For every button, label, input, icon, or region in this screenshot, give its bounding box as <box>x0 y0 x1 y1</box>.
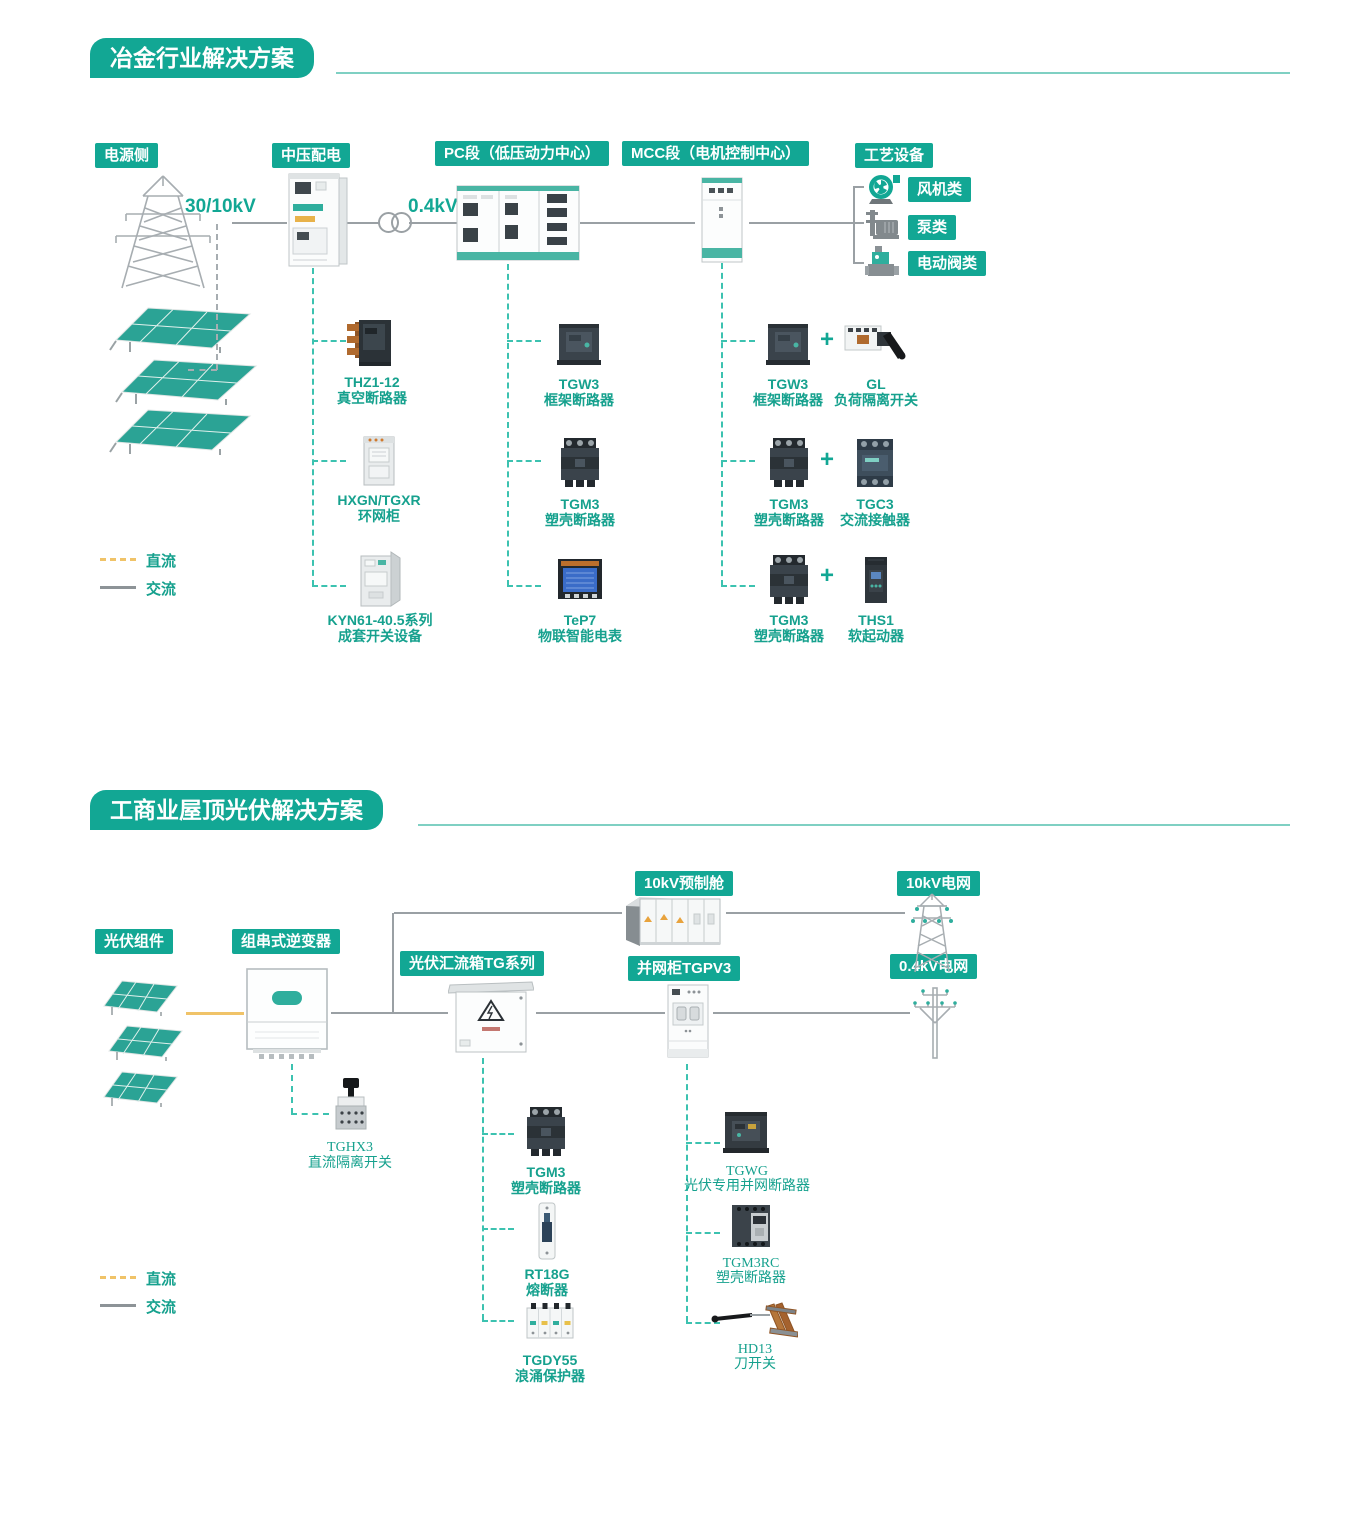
product-model: TGW3 <box>559 376 599 392</box>
ac-line <box>409 222 457 224</box>
product-desc: 物联智能电表 <box>538 628 622 644</box>
product-model: TGWG <box>726 1164 768 1180</box>
solar-panel-icon <box>100 300 260 354</box>
product-desc: 塑壳断路器 <box>754 628 824 644</box>
pc-branch-line <box>507 340 541 342</box>
product-model: TGM3RC <box>723 1256 780 1272</box>
product-tgwg-image <box>721 1106 771 1158</box>
product-model: TGM3 <box>770 496 809 512</box>
product-desc: 框架断路器 <box>753 392 823 408</box>
grid-branch-line <box>686 1232 720 1234</box>
mv-branch-line <box>312 460 346 462</box>
legend-ac-swatch <box>100 586 136 589</box>
legend-ac-label: 交流 <box>146 578 176 599</box>
product-desc: 环网柜 <box>358 508 400 524</box>
process-bracket-line <box>853 186 864 188</box>
product-model: TGDY55 <box>523 1352 577 1368</box>
plus-sign: + <box>820 448 834 472</box>
combiner-branch-line <box>482 1320 514 1322</box>
chip-pump-type: 泵类 <box>908 215 956 240</box>
product-model: TGHX3 <box>327 1140 373 1156</box>
page: 冶金行业解决方案 电源侧 中压配电 PC段（低压动力中心） MCC段（电机控制中… <box>0 0 1350 1528</box>
pc-branch-line <box>507 585 541 587</box>
pv-feed-dashed-line <box>216 224 218 370</box>
product-model: HXGN/TGXR <box>337 492 420 508</box>
product-model: RT18G <box>524 1266 569 1282</box>
plus-sign: + <box>820 328 834 352</box>
inverter-branch-line <box>291 1113 329 1115</box>
product-tgm3-image <box>764 552 814 607</box>
voltage-04kv: 0.4kV <box>408 196 458 218</box>
product-desc: 浪涌保护器 <box>515 1368 585 1384</box>
ac-line <box>713 1012 910 1014</box>
legend-ac-swatch <box>100 1304 136 1307</box>
product-model: THZ1-12 <box>344 374 399 390</box>
product-tgm3rc-image <box>728 1200 774 1252</box>
grid-tower-icon <box>905 890 959 978</box>
ac-line <box>392 913 394 1013</box>
product-model: TGC3 <box>856 496 893 512</box>
product-model: TeP7 <box>564 612 596 628</box>
pump-icon <box>864 206 902 242</box>
transformer-icon <box>375 208 415 237</box>
product-gl-image <box>843 320 907 366</box>
ac-line <box>232 222 287 224</box>
product-model: HD13 <box>738 1342 772 1358</box>
ac-line <box>536 1012 665 1014</box>
pc-cabinet-image <box>455 180 581 266</box>
product-desc: 刀开关 <box>734 1357 776 1373</box>
solar-panel-icon <box>100 402 260 456</box>
dc-line <box>186 1012 244 1015</box>
mcc-branch-line <box>721 460 755 462</box>
product-tgdy55-image <box>525 1300 575 1344</box>
combiner-box-image <box>448 976 534 1056</box>
product-tgm3-image <box>555 435 605 490</box>
product-hd13-image <box>710 1300 798 1340</box>
product-kyn61-image <box>357 550 403 608</box>
product-model: GL <box>866 376 885 392</box>
product-tgc3-image <box>851 435 899 491</box>
legend-dc-swatch <box>100 1276 136 1279</box>
product-desc: 塑壳断路器 <box>545 512 615 528</box>
ac-line <box>580 222 695 224</box>
product-model: KYN61-40.5系列 <box>327 612 432 628</box>
product-model: THS1 <box>858 612 894 628</box>
pc-branch-line <box>507 264 509 586</box>
chip-string-inverter: 组串式逆变器 <box>232 929 340 954</box>
product-desc: 成套开关设备 <box>338 628 422 644</box>
product-tgm3-image <box>764 435 814 490</box>
mv-branch-line <box>312 585 346 587</box>
ac-line <box>726 912 905 914</box>
chip-pv-module: 光伏组件 <box>95 929 173 954</box>
string-inverter-image <box>245 966 329 1062</box>
utility-pole-icon <box>910 982 960 1062</box>
mcc-cabinet-image <box>694 174 750 266</box>
process-bracket-line <box>853 186 855 264</box>
product-desc: 负荷隔离开关 <box>834 392 918 408</box>
mcc-branch-line <box>721 340 755 342</box>
product-hxgn-image <box>362 434 396 488</box>
product-tep7-image <box>555 556 605 602</box>
grid-cabinet-image <box>665 983 711 1061</box>
product-desc: 交流接触器 <box>840 512 910 528</box>
product-desc: 熔断器 <box>526 1282 568 1298</box>
product-desc: 真空断路器 <box>337 390 407 406</box>
combiner-branch-line <box>482 1228 514 1230</box>
chip-pc-section: PC段（低压动力中心） <box>435 141 609 166</box>
solar-panel-icon <box>95 975 183 1017</box>
legend-dc-label: 直流 <box>146 1268 176 1289</box>
combiner-branch-line <box>482 1058 484 1320</box>
section1-title: 冶金行业解决方案 <box>90 38 314 78</box>
combiner-branch-line <box>482 1133 514 1135</box>
product-model: TGM3 <box>561 496 600 512</box>
mv-branch-line <box>312 268 314 586</box>
plus-sign: + <box>820 564 834 588</box>
chip-power-side: 电源侧 <box>95 143 158 168</box>
mcc-branch-line <box>721 263 723 586</box>
section2-underline <box>418 824 1290 826</box>
product-desc: 塑壳断路器 <box>754 512 824 528</box>
legend-ac-label: 交流 <box>146 1296 176 1317</box>
valve-icon <box>864 244 902 282</box>
chip-fan-type: 风机类 <box>908 177 971 202</box>
chip-process-equipment: 工艺设备 <box>855 143 933 168</box>
product-desc: 软起动器 <box>848 628 904 644</box>
product-desc: 直流隔离开关 <box>308 1156 392 1172</box>
chip-mv-distribution: 中压配电 <box>272 143 350 168</box>
product-model: TGW3 <box>768 376 808 392</box>
product-model: TGM3 <box>527 1164 566 1180</box>
chip-combiner-box: 光伏汇流箱TG系列 <box>400 951 544 976</box>
inverter-branch-line <box>291 1064 293 1114</box>
chip-grid-cabinet: 并网柜TGPV3 <box>628 956 740 981</box>
product-rt18g-image <box>535 1200 559 1262</box>
process-bracket-line <box>853 222 864 224</box>
solar-panel-icon <box>95 1066 183 1108</box>
solar-panel-icon <box>106 352 266 406</box>
legend-dc-swatch <box>100 558 136 561</box>
mcc-branch-line <box>721 585 755 587</box>
solar-panel-icon <box>100 1020 188 1062</box>
ac-line <box>749 222 853 224</box>
product-tgw3-image <box>553 316 605 368</box>
ac-line <box>394 912 622 914</box>
pv-feed-dashed-line <box>188 369 217 371</box>
chip-mcc-section: MCC段（电机控制中心） <box>622 141 809 166</box>
product-desc: 塑壳断路器 <box>511 1180 581 1196</box>
product-model: TGM3 <box>770 612 809 628</box>
legend-dc-label: 直流 <box>146 550 176 571</box>
chip-valve-type: 电动阀类 <box>908 251 986 276</box>
process-bracket-line <box>853 262 864 264</box>
product-desc: 光伏专用并网断路器 <box>684 1179 810 1195</box>
product-ths1-image <box>856 554 896 606</box>
product-tghx3-image <box>330 1076 372 1134</box>
product-tgw3-image <box>762 316 814 368</box>
section2-title: 工商业屋顶光伏解决方案 <box>90 790 383 830</box>
product-desc: 框架断路器 <box>544 392 614 408</box>
prefab-container-image <box>622 890 724 952</box>
grid-branch-line <box>686 1142 720 1144</box>
mv-cabinet-image <box>283 170 351 270</box>
ac-line <box>331 1012 448 1014</box>
product-thz1-12-image <box>345 316 397 368</box>
product-tgm3-image <box>521 1104 571 1159</box>
section1-underline <box>336 72 1290 74</box>
mv-branch-line <box>312 340 346 342</box>
fan-icon <box>864 170 902 204</box>
product-desc: 塑壳断路器 <box>716 1271 786 1287</box>
pc-branch-line <box>507 460 541 462</box>
